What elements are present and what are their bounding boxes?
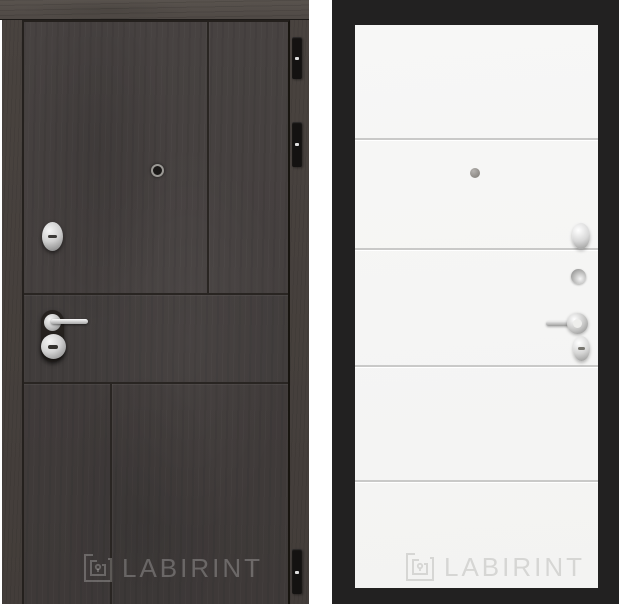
hinge-pin bbox=[295, 571, 299, 574]
door-product-image: LABIRINT bbox=[0, 0, 619, 604]
hinge-icon-middle bbox=[292, 122, 302, 167]
molding-groove-4 bbox=[355, 480, 598, 482]
keyhole-escutcheon-icon bbox=[41, 334, 66, 359]
panel-seam-vertical-top bbox=[207, 22, 209, 293]
molding-groove-2 bbox=[355, 248, 598, 250]
molding-groove-3 bbox=[355, 365, 598, 367]
rose-center bbox=[573, 319, 582, 328]
door-frame-right-jamb bbox=[290, 20, 309, 604]
door-white-panel: LABIRINT bbox=[355, 25, 598, 588]
keyhole-slot bbox=[48, 235, 57, 238]
lever-handle-icon bbox=[51, 319, 88, 324]
door-dark-leaf: LABIRINT bbox=[22, 20, 290, 604]
hinge-icon-top bbox=[292, 37, 302, 79]
labirint-maze-logo-icon bbox=[405, 552, 435, 582]
brand-logo: LABIRINT bbox=[83, 553, 263, 583]
brand-logo-text: LABIRINT bbox=[444, 554, 585, 580]
handle-rose bbox=[567, 313, 588, 334]
door-white-frame: LABIRINT bbox=[332, 0, 619, 604]
brand-logo: LABIRINT bbox=[405, 552, 585, 582]
keyhole-slot bbox=[578, 347, 585, 350]
door-frame-lintel bbox=[0, 0, 309, 20]
oval-knob-icon bbox=[572, 223, 590, 249]
molding-groove-1 bbox=[355, 138, 598, 140]
hinge-pin bbox=[295, 143, 299, 146]
brand-logo-text: LABIRINT bbox=[122, 555, 263, 581]
keyhole-slot bbox=[48, 345, 58, 349]
door-dark-wood: LABIRINT bbox=[0, 0, 330, 604]
peephole-icon bbox=[151, 164, 164, 177]
hinge-pin bbox=[295, 57, 299, 60]
peephole-icon bbox=[470, 168, 480, 178]
hinge-icon-bottom bbox=[292, 549, 302, 594]
panel-seam-horizontal-2 bbox=[24, 382, 288, 384]
thumbturn-icon bbox=[571, 269, 586, 284]
door-frame-left-jamb bbox=[2, 20, 22, 604]
keyhole-escutcheon-icon bbox=[573, 336, 590, 361]
labirint-maze-logo-icon bbox=[83, 553, 113, 583]
panel-seam-horizontal-1 bbox=[24, 293, 288, 295]
cylinder-lock-icon bbox=[42, 222, 63, 251]
